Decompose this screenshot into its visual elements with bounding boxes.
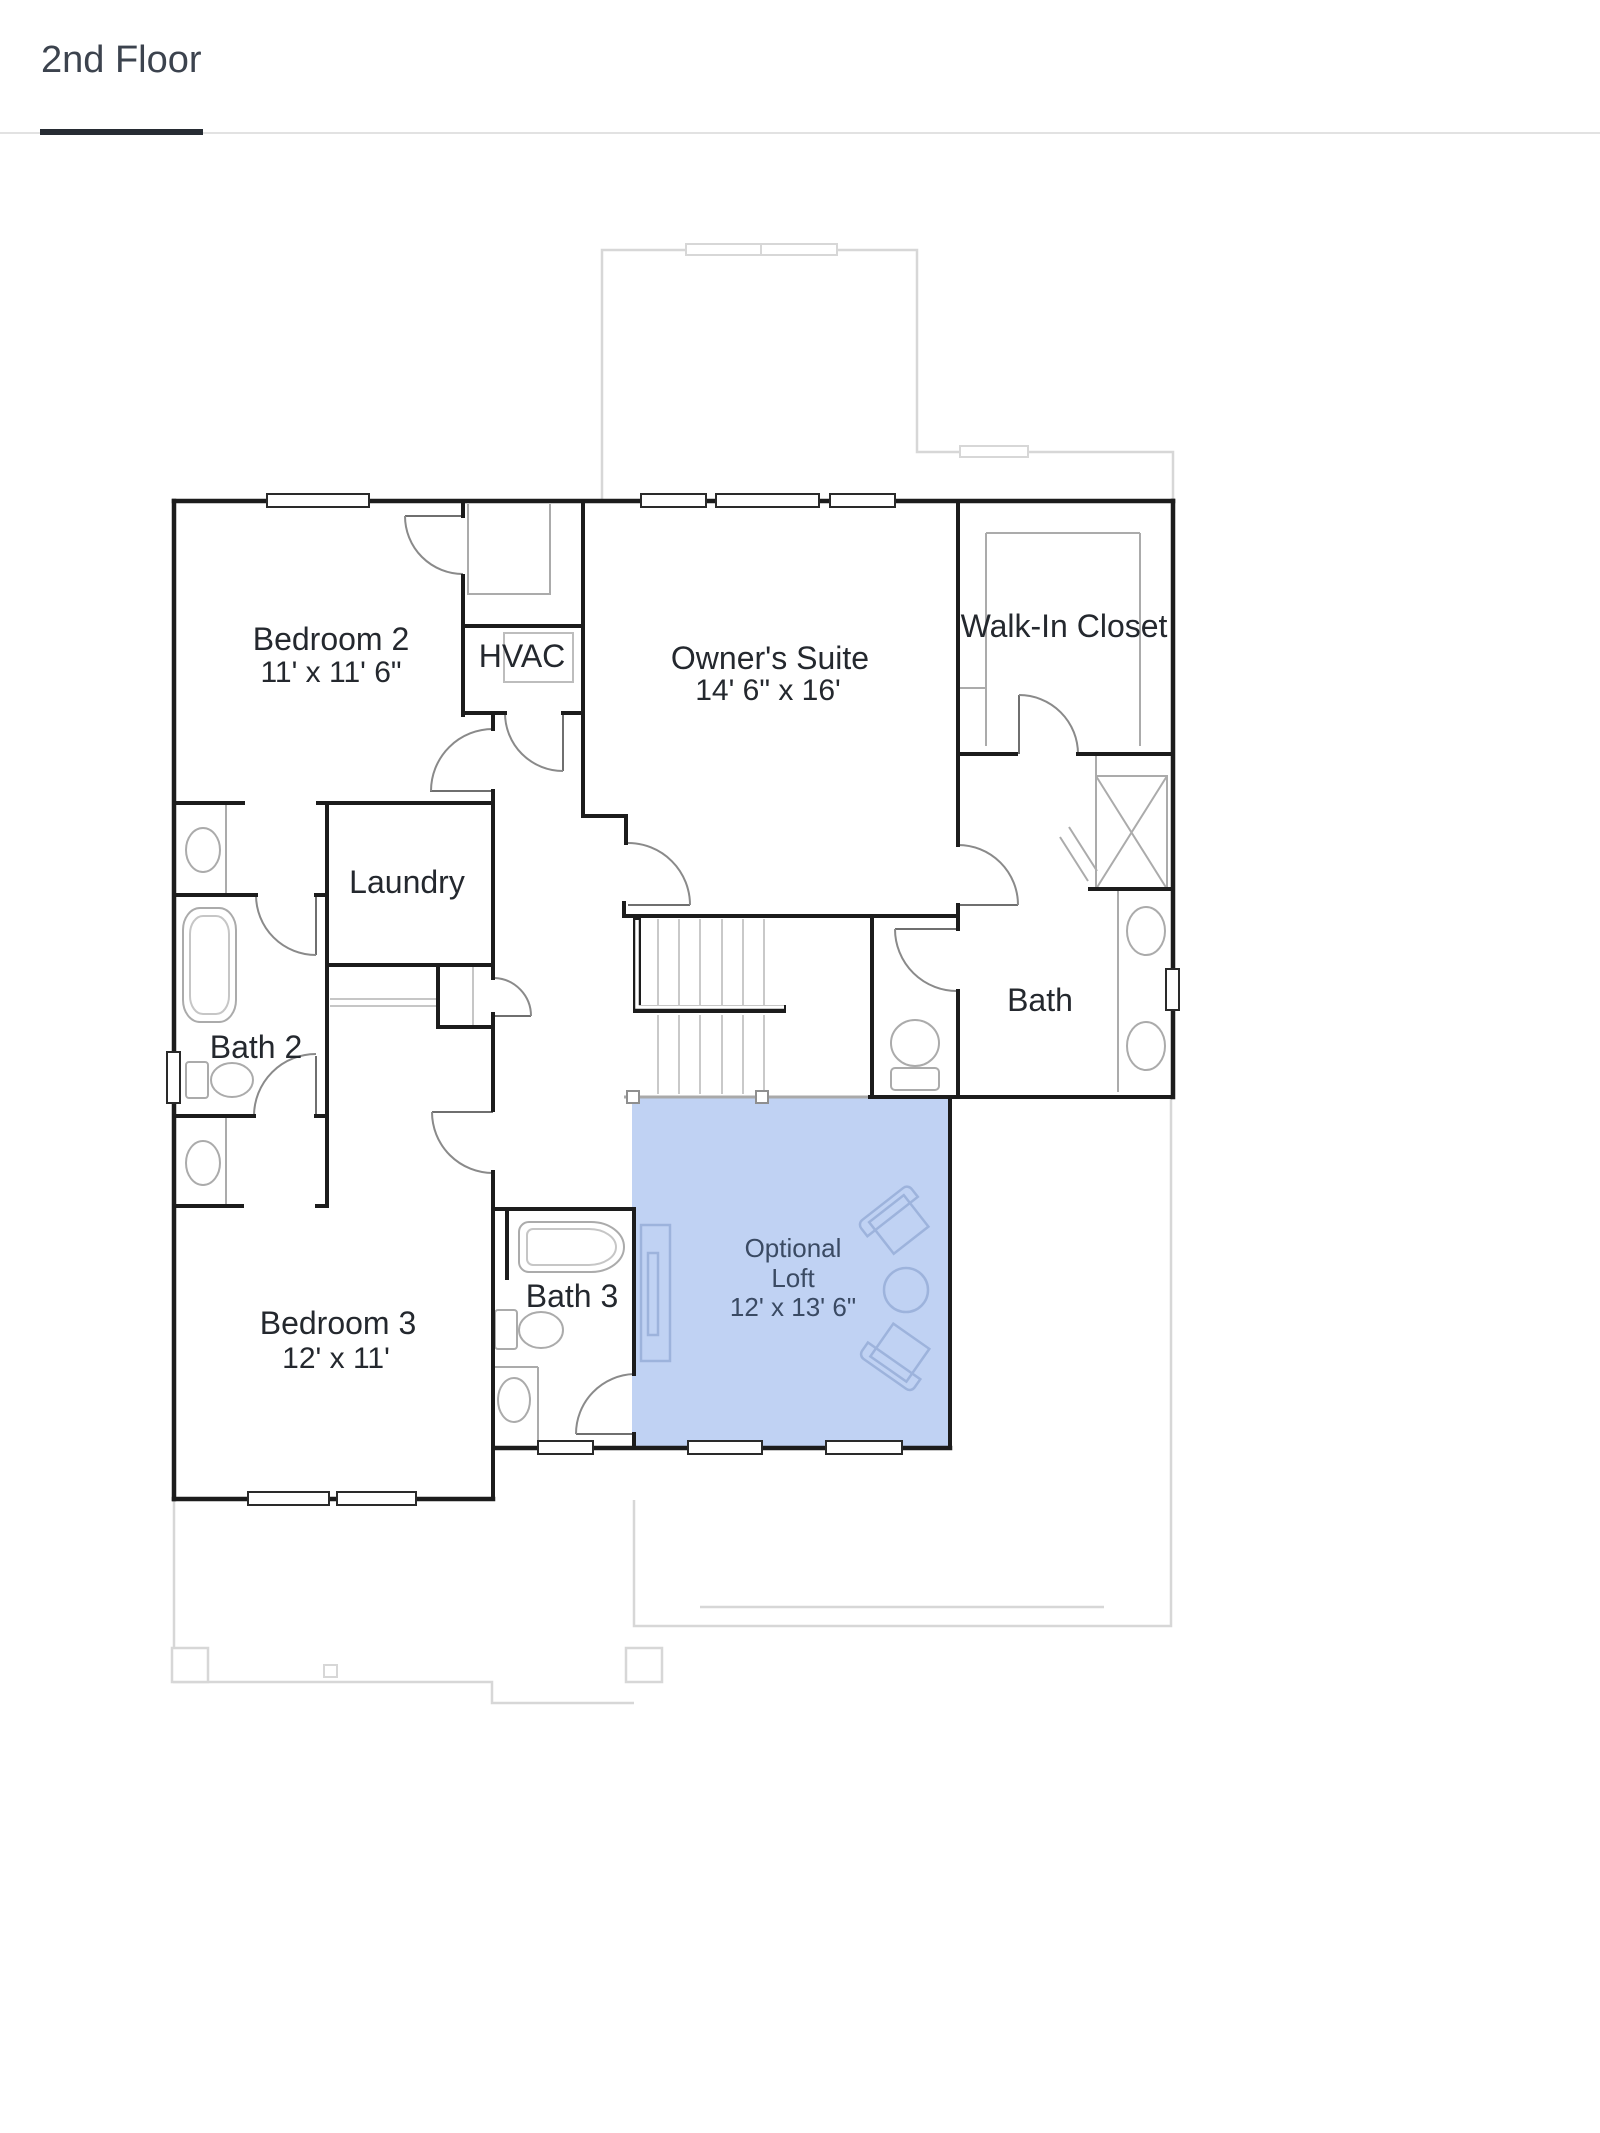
svg-text:14' 6" x 16': 14' 6" x 16'	[695, 674, 841, 707]
svg-text:HVAC: HVAC	[479, 638, 566, 674]
svg-text:11' x 11' 6": 11' x 11' 6"	[260, 656, 401, 689]
svg-text:12' x 11': 12' x 11'	[282, 1342, 390, 1375]
svg-text:2nd Floor: 2nd Floor	[41, 39, 202, 81]
svg-text:Bath 3: Bath 3	[526, 1278, 619, 1314]
svg-text:Walk-In Closet: Walk-In Closet	[961, 608, 1168, 644]
svg-text:Owner's Suite: Owner's Suite	[671, 640, 869, 676]
svg-text:Bedroom 2: Bedroom 2	[253, 621, 410, 657]
svg-text:12' x 13' 6": 12' x 13' 6"	[730, 1292, 856, 1322]
svg-text:Bath 2: Bath 2	[210, 1029, 303, 1065]
svg-text:Optional: Optional	[745, 1233, 842, 1263]
svg-text:Bedroom 3: Bedroom 3	[260, 1305, 417, 1341]
svg-text:Loft: Loft	[771, 1263, 815, 1293]
svg-text:Laundry: Laundry	[349, 864, 465, 900]
svg-text:Bath: Bath	[1007, 982, 1073, 1018]
